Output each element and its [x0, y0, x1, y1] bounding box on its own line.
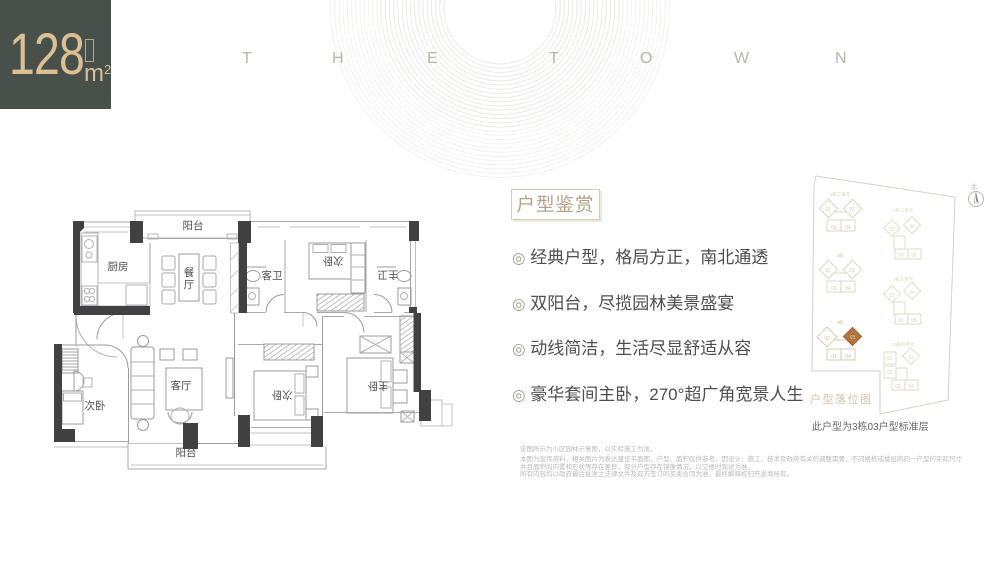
svg-text:餐: 餐: [184, 266, 195, 279]
svg-text:02: 02: [887, 356, 893, 362]
svg-text:主卫: 主卫: [378, 269, 399, 281]
svg-text:3栋: 3栋: [836, 319, 844, 326]
svg-text:02: 02: [825, 207, 831, 213]
svg-text:7栋二单元: 7栋二单元: [893, 207, 914, 214]
svg-text:04: 04: [845, 354, 851, 360]
svg-text:2栋: 2栋: [836, 252, 844, 259]
svg-text:主卧: 主卧: [367, 380, 388, 393]
svg-text:06: 06: [898, 253, 904, 259]
svg-text:04: 04: [845, 286, 851, 292]
svg-text:04: 04: [908, 384, 914, 390]
svg-text:05: 05: [895, 384, 901, 390]
svg-text:阳台: 阳台: [176, 446, 197, 459]
svg-text:01: 01: [831, 286, 837, 292]
svg-text:05: 05: [911, 318, 917, 324]
svg-text:次卧: 次卧: [271, 389, 292, 402]
svg-text:02: 02: [889, 293, 895, 299]
svg-text:10栋四单元: 10栋四单元: [891, 341, 915, 348]
svg-text:01: 01: [831, 354, 837, 360]
svg-text:01: 01: [887, 370, 893, 376]
svg-text:03: 03: [850, 335, 856, 341]
svg-text:次卧: 次卧: [322, 255, 343, 268]
svg-text:02: 02: [824, 336, 830, 342]
svg-text:客厅: 客厅: [171, 379, 192, 392]
svg-text:06: 06: [898, 318, 904, 324]
svg-text:05: 05: [911, 253, 917, 259]
svg-text:04: 04: [909, 290, 915, 296]
svg-text:02: 02: [825, 268, 831, 274]
svg-text:厨房: 厨房: [108, 260, 129, 273]
svg-text:03: 03: [908, 355, 914, 361]
svg-text:02: 02: [889, 227, 895, 233]
svg-text:1栋二单元: 1栋二单元: [830, 191, 851, 198]
svg-text:次卧: 次卧: [85, 399, 106, 412]
svg-text:北: 北: [971, 183, 977, 191]
svg-text:阳台: 阳台: [183, 219, 204, 232]
svg-text:04: 04: [909, 224, 915, 230]
svg-text:厅: 厅: [184, 279, 195, 291]
svg-text:01: 01: [831, 225, 837, 231]
svg-text:03: 03: [849, 268, 855, 274]
svg-text:客卫: 客卫: [262, 269, 283, 282]
svg-text:04: 04: [845, 225, 851, 231]
svg-text:03: 03: [849, 207, 855, 213]
svg-text:7栋三单元: 7栋三单元: [893, 276, 914, 283]
